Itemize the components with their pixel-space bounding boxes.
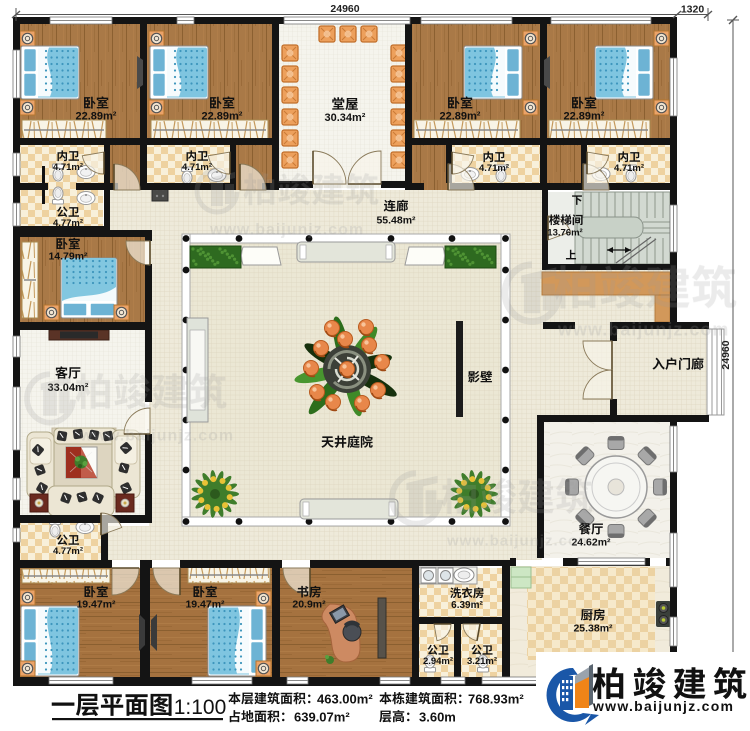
svg-text:www.baijunjz.com: www.baijunjz.com [557, 319, 729, 339]
svg-text:20.9m²: 20.9m² [292, 599, 326, 611]
svg-text:22.89m²: 22.89m² [440, 110, 481, 122]
svg-text:19.47m²: 19.47m² [185, 599, 225, 611]
svg-text:www.baijunjz.com: www.baijunjz.com [209, 222, 364, 239]
svg-text:24960: 24960 [330, 3, 359, 15]
svg-text:1:100: 1:100 [174, 696, 227, 719]
svg-text:4.71m²: 4.71m² [479, 163, 509, 174]
svg-text:1320: 1320 [681, 4, 705, 16]
svg-text:463.00m²: 463.00m² [317, 692, 373, 707]
svg-text:3.21m²: 3.21m² [467, 656, 497, 667]
svg-text:14.79m²: 14.79m² [48, 251, 88, 263]
svg-text:13.76m²: 13.76m² [547, 227, 582, 238]
svg-text:24960: 24960 [720, 340, 732, 369]
svg-text:22.89m²: 22.89m² [564, 110, 605, 122]
svg-text:4.71m²: 4.71m² [53, 162, 83, 173]
svg-text:22.89m²: 22.89m² [76, 110, 117, 122]
svg-text:www.baijunjz.com: www.baijunjz.com [446, 532, 592, 549]
svg-text:55.48m²: 55.48m² [376, 215, 416, 227]
svg-text:22.89m²: 22.89m² [202, 110, 243, 122]
svg-text:3.60m: 3.60m [419, 710, 456, 725]
svg-text:2.94m²: 2.94m² [423, 656, 453, 667]
svg-text:4.77m²: 4.77m² [53, 218, 83, 229]
svg-text:4.71m²: 4.71m² [614, 163, 644, 174]
svg-text:25.38m²: 25.38m² [573, 623, 613, 635]
svg-text:639.07m²: 639.07m² [294, 710, 350, 725]
svg-text:6.39m²: 6.39m² [451, 600, 483, 611]
svg-text:www.baijunjz.com: www.baijunjz.com [79, 428, 234, 445]
svg-text:768.93m²: 768.93m² [468, 692, 524, 707]
svg-text:4.77m²: 4.77m² [53, 546, 83, 557]
svg-text:www.baijunjz.com: www.baijunjz.com [592, 698, 733, 714]
svg-text:30.34m²: 30.34m² [325, 112, 366, 124]
svg-text:19.47m²: 19.47m² [76, 599, 116, 611]
